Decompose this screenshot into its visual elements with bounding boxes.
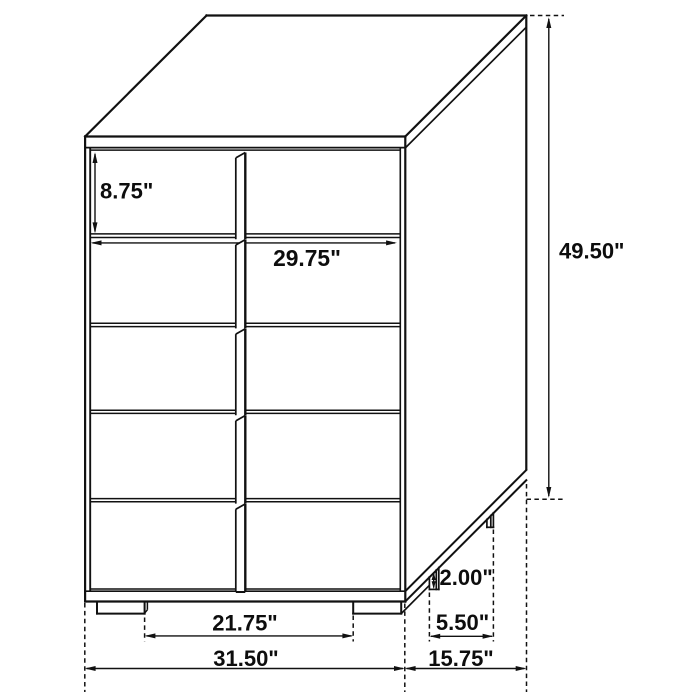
svg-text:5.50": 5.50" <box>436 610 489 635</box>
svg-text:31.50": 31.50" <box>213 646 278 671</box>
svg-text:49.50": 49.50" <box>559 239 624 264</box>
svg-text:8.75": 8.75" <box>100 179 153 204</box>
svg-text:15.75": 15.75" <box>428 646 493 671</box>
svg-text:2.00": 2.00" <box>440 565 493 590</box>
svg-text:21.75": 21.75" <box>212 611 277 636</box>
svg-text:29.75": 29.75" <box>273 245 341 271</box>
